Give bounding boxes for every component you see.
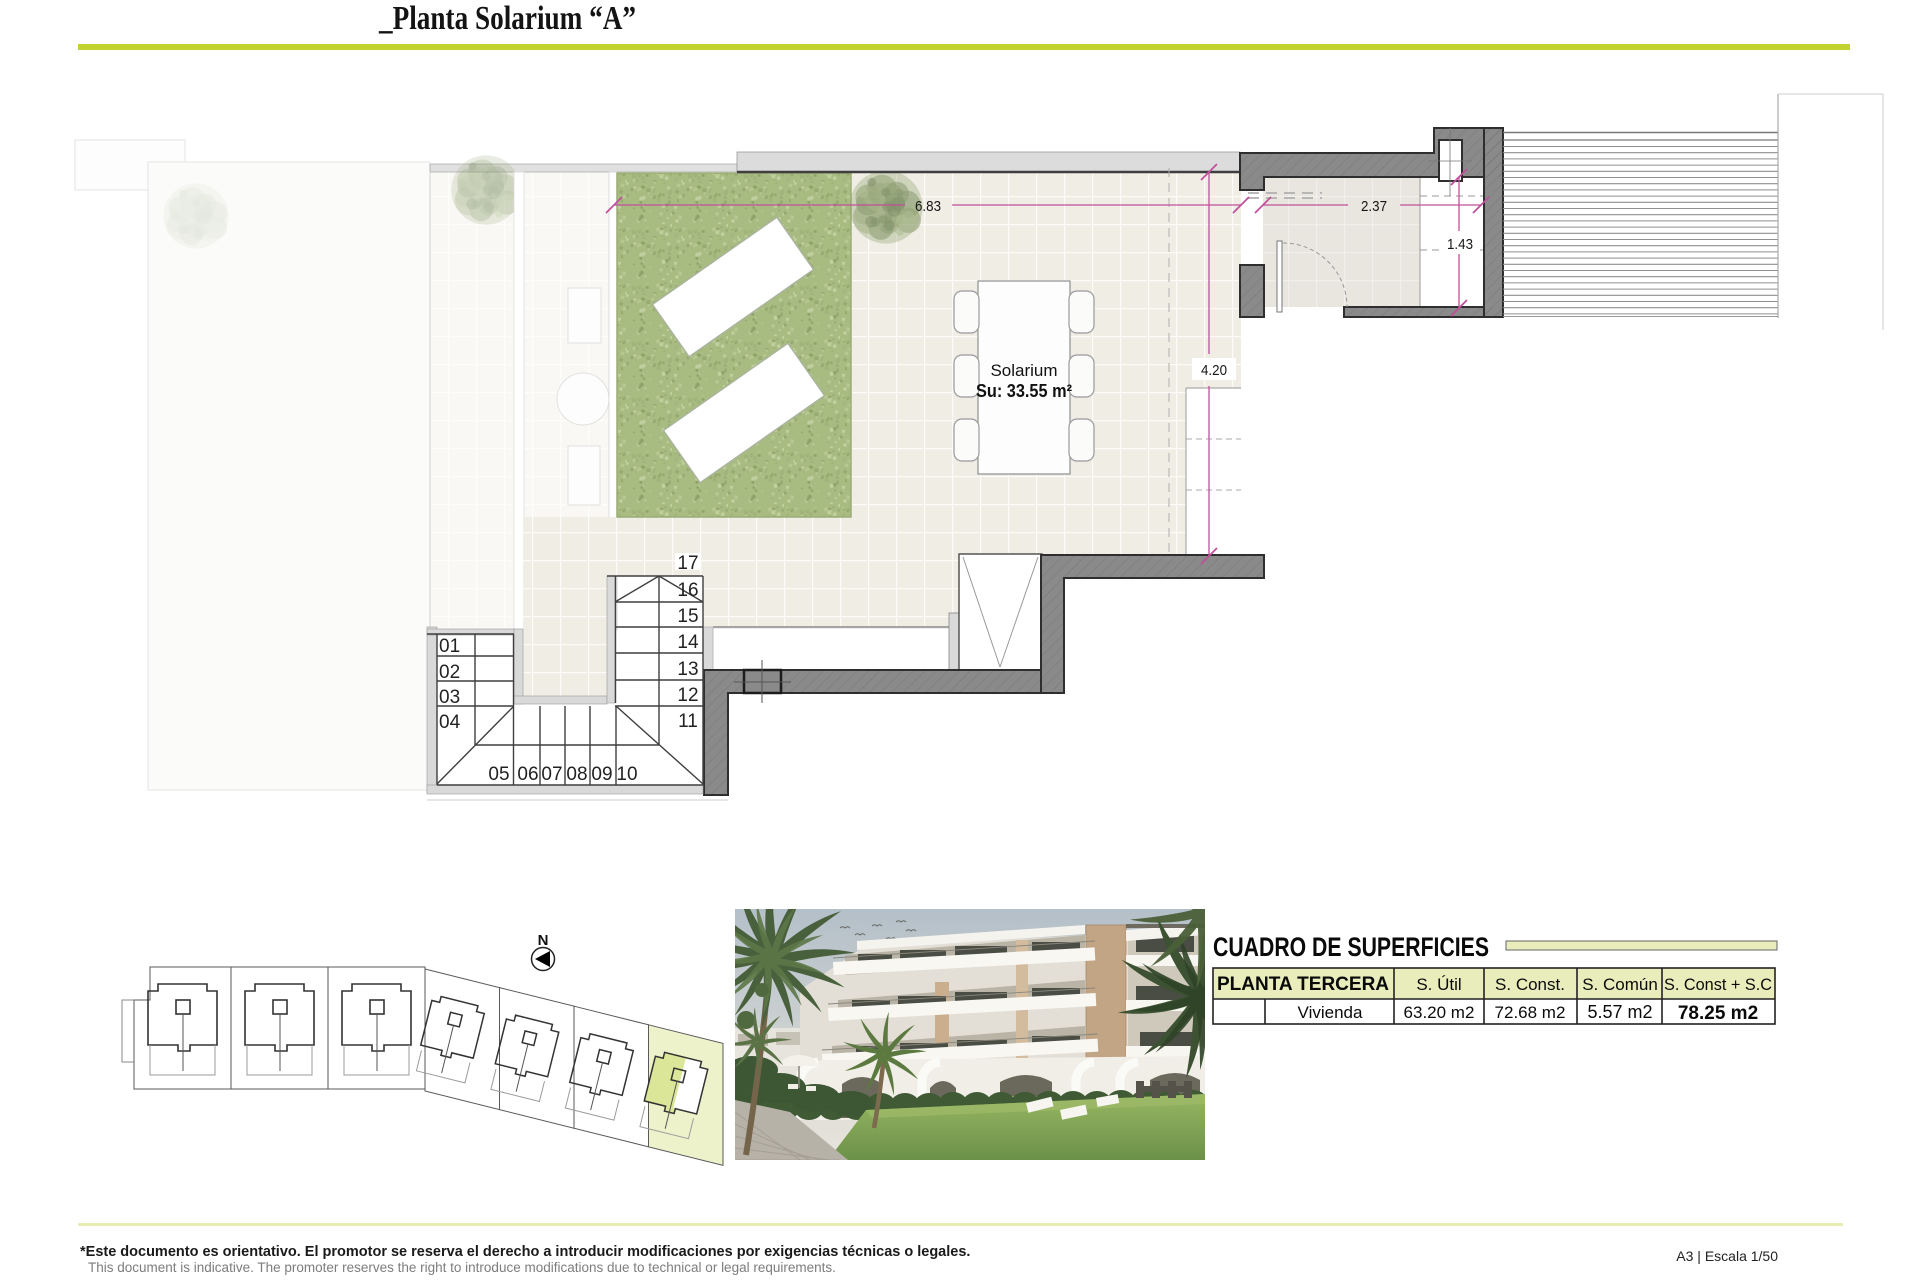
svg-text:01: 01 [439, 636, 460, 657]
svg-text:PLANTA TERCERA: PLANTA TERCERA [1217, 974, 1389, 995]
svg-text:04: 04 [439, 712, 461, 733]
svg-text:09: 09 [591, 764, 612, 785]
svg-text:A3 | Escala 1/50: A3 | Escala 1/50 [1676, 1248, 1778, 1264]
svg-text:This document is indicative. T: This document is indicative. The promote… [88, 1260, 836, 1275]
svg-text:07: 07 [541, 764, 562, 785]
svg-text:N: N [538, 932, 549, 949]
svg-text:10: 10 [616, 764, 637, 785]
svg-text:2.37: 2.37 [1361, 198, 1387, 215]
svg-text:13: 13 [677, 659, 698, 680]
svg-text:06: 06 [517, 764, 538, 785]
svg-text:78.25 m2: 78.25 m2 [1678, 1003, 1758, 1024]
svg-text:14: 14 [677, 632, 699, 653]
svg-text:02: 02 [439, 662, 460, 683]
svg-text:11: 11 [678, 711, 698, 732]
svg-text:17: 17 [677, 553, 698, 574]
svg-text:Solarium: Solarium [990, 361, 1057, 380]
svg-text:Vivienda: Vivienda [1298, 1003, 1363, 1022]
svg-text:4.20: 4.20 [1201, 362, 1227, 379]
svg-text:S. Const.: S. Const. [1495, 975, 1565, 994]
svg-text:*Este documento es orientativo: *Este documento es orientativo. El promo… [80, 1244, 970, 1260]
svg-text:08: 08 [566, 764, 587, 785]
svg-text:CUADRO DE SUPERFICIES: CUADRO DE SUPERFICIES [1213, 932, 1489, 962]
svg-text:S. Común: S. Común [1582, 975, 1658, 994]
svg-text:1.43: 1.43 [1447, 236, 1473, 253]
svg-text:16: 16 [677, 580, 698, 601]
svg-text:5.57 m2: 5.57 m2 [1587, 1002, 1652, 1022]
svg-text:Su: 33.55 m²: Su: 33.55 m² [976, 381, 1072, 401]
svg-text:S. Útil: S. Útil [1416, 975, 1461, 994]
svg-text:05: 05 [488, 764, 509, 785]
svg-text:03: 03 [439, 687, 460, 708]
svg-text:6.83: 6.83 [915, 198, 941, 215]
svg-text:S. Const + S.C: S. Const + S.C [1664, 975, 1772, 994]
svg-text:63.20 m2: 63.20 m2 [1404, 1003, 1475, 1022]
svg-text:12: 12 [677, 685, 698, 706]
svg-text:_Planta Solarium “A”: _Planta Solarium “A” [378, 0, 636, 37]
svg-text:15: 15 [677, 606, 698, 627]
svg-text:72.68 m2: 72.68 m2 [1495, 1003, 1566, 1022]
